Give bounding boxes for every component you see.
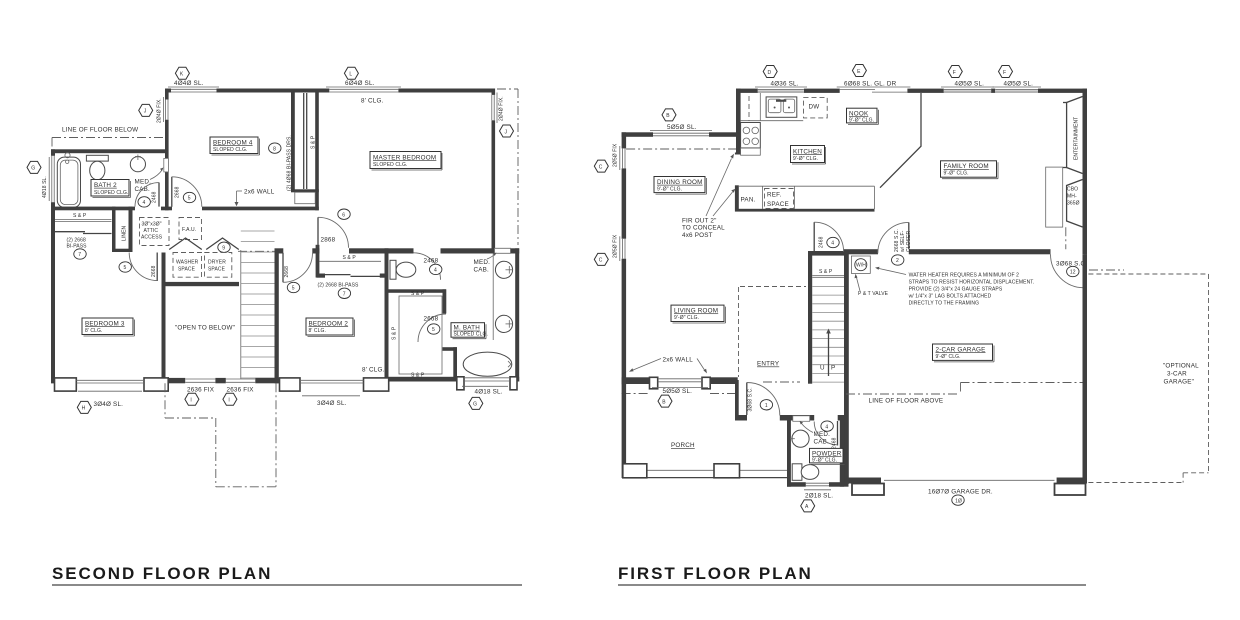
svg-text:LINE OF FLOOR ABOVE: LINE OF FLOOR ABOVE	[869, 398, 944, 405]
svg-text:5Ø5Ø SL.: 5Ø5Ø SL.	[667, 124, 697, 131]
svg-text:WASHER: WASHER	[176, 260, 199, 266]
svg-text:2636 FIX: 2636 FIX	[187, 387, 215, 394]
svg-text:M. BATH: M. BATH	[454, 325, 481, 332]
svg-text:2Ø4Ø FIX.: 2Ø4Ø FIX.	[157, 98, 163, 123]
svg-text:KITCHEN: KITCHEN	[793, 148, 822, 155]
svg-text:J: J	[505, 129, 508, 135]
svg-text:2668: 2668	[174, 186, 180, 198]
svg-text:U: U	[820, 365, 825, 372]
svg-text:H: H	[82, 406, 86, 412]
svg-text:3Ø"x3Ø": 3Ø"x3Ø"	[142, 222, 162, 228]
svg-text:7: 7	[78, 252, 81, 258]
svg-text:SLOPED CLG.: SLOPED CLG.	[454, 332, 488, 338]
svg-text:3Ø68 S.C.: 3Ø68 S.C.	[748, 387, 754, 411]
svg-text:4: 4	[143, 200, 146, 206]
svg-text:PORCH: PORCH	[671, 442, 695, 449]
svg-text:16Ø7Ø GARAGE DR.: 16Ø7Ø GARAGE DR.	[928, 489, 993, 496]
svg-text:BEDROOM 3: BEDROOM 3	[85, 320, 125, 327]
svg-text:9'-Ø" CLG.: 9'-Ø" CLG.	[674, 315, 699, 321]
svg-text:DRYER: DRYER	[208, 260, 226, 266]
svg-text:"OPEN TO BELOW": "OPEN TO BELOW"	[175, 325, 235, 332]
svg-text:CAB.: CAB.	[474, 266, 490, 273]
svg-text:3Ø4Ø SL.: 3Ø4Ø SL.	[317, 400, 347, 407]
svg-text:2-CAR GARAGE: 2-CAR GARAGE	[936, 346, 986, 353]
svg-text:J: J	[144, 109, 147, 115]
svg-text:F: F	[953, 70, 956, 76]
svg-text:8: 8	[273, 146, 276, 152]
svg-text:2468: 2468	[832, 437, 838, 449]
svg-text:C: C	[599, 258, 603, 264]
svg-text:DIRECTLY TO THE FRAMING: DIRECTLY TO THE FRAMING	[909, 301, 979, 307]
svg-text:(2) 4Ø68 BI-PASS DRS.: (2) 4Ø68 BI-PASS DRS.	[287, 135, 293, 191]
svg-text:GARAGE": GARAGE"	[1164, 379, 1195, 386]
svg-text:2x6 WALL: 2x6 WALL	[244, 189, 275, 196]
svg-text:9'-Ø" CLG.: 9'-Ø" CLG.	[944, 171, 969, 177]
svg-text:DW: DW	[809, 104, 820, 111]
svg-text:2668: 2668	[284, 266, 290, 278]
svg-text:MED.: MED.	[814, 431, 831, 438]
svg-text:6Ø4Ø SL.: 6Ø4Ø SL.	[345, 80, 375, 87]
svg-text:2468: 2468	[818, 236, 824, 248]
svg-text:9: 9	[222, 246, 225, 252]
svg-text:5: 5	[292, 286, 295, 292]
svg-text:S & P: S & P	[73, 213, 87, 219]
svg-text:SLOPED CLG.: SLOPED CLG.	[213, 147, 247, 153]
svg-text:F.A.U.: F.A.U.	[182, 227, 196, 233]
svg-text:2: 2	[896, 258, 899, 264]
svg-text:3Ø4Ø SL.: 3Ø4Ø SL.	[94, 401, 124, 408]
svg-text:W/H: W/H	[856, 263, 866, 269]
svg-text:P: P	[831, 365, 835, 372]
svg-text:CBO: CBO	[1067, 187, 1078, 193]
svg-text:REF.: REF.	[767, 191, 781, 198]
svg-text:2668: 2668	[151, 265, 157, 277]
svg-text:D: D	[768, 70, 772, 76]
svg-text:7: 7	[343, 292, 346, 298]
svg-text:2468: 2468	[424, 258, 439, 265]
svg-text:SPACE: SPACE	[208, 267, 226, 273]
svg-text:9'-Ø" CLG.: 9'-Ø" CLG.	[657, 186, 682, 192]
svg-text:8' CLG.: 8' CLG.	[361, 98, 384, 105]
svg-text:2x6 WALL: 2x6 WALL	[663, 357, 694, 364]
svg-text:S & P: S & P	[392, 326, 398, 340]
svg-text:4Ø36 SL.: 4Ø36 SL.	[771, 81, 799, 88]
svg-text:TO CONCEAL: TO CONCEAL	[682, 225, 725, 232]
svg-text:S & P: S & P	[343, 255, 357, 261]
svg-text:FIRST FLOOR PLAN: FIRST FLOOR PLAN	[618, 564, 813, 583]
svg-text:2Ø5Ø FIX: 2Ø5Ø FIX	[613, 143, 619, 167]
svg-text:DINING ROOM: DINING ROOM	[657, 179, 703, 186]
svg-text:STRAPS TO RESIST HORIZONTAL DI: STRAPS TO RESIST HORIZONTAL DISPLACEMENT…	[909, 280, 1035, 286]
svg-text:L: L	[349, 72, 352, 78]
svg-text:SPACE: SPACE	[178, 267, 196, 273]
svg-text:4: 4	[831, 241, 834, 247]
svg-text:5Ø5Ø SL.: 5Ø5Ø SL.	[663, 388, 693, 395]
svg-text:MH-: MH-	[1067, 194, 1077, 200]
svg-text:P & T VALVE: P & T VALVE	[858, 291, 889, 297]
svg-text:B: B	[662, 399, 666, 405]
svg-text:E: E	[857, 69, 861, 75]
svg-text:PROVIDE (2) 3/4"x 24 GAUGE STR: PROVIDE (2) 3/4"x 24 GAUGE STRAPS	[909, 287, 1003, 293]
svg-text:LINEN: LINEN	[122, 225, 128, 241]
svg-text:FIR OUT 2": FIR OUT 2"	[682, 217, 717, 224]
svg-text:8' CLG.: 8' CLG.	[85, 328, 103, 334]
svg-text:ENTERTAINMENT: ENTERTAINMENT	[1074, 117, 1080, 160]
svg-text:4Ø18 SL.: 4Ø18 SL.	[42, 176, 48, 198]
svg-text:S & P: S & P	[411, 291, 425, 297]
svg-text:5: 5	[432, 327, 435, 333]
svg-text:5: 5	[188, 196, 191, 202]
svg-text:3-CAR: 3-CAR	[1167, 371, 1187, 378]
svg-text:6Ø68 SL. GL. DR: 6Ø68 SL. GL. DR	[844, 81, 897, 88]
svg-text:2Ø4Ø FIX.: 2Ø4Ø FIX.	[499, 96, 505, 121]
svg-text:SLOPED CLG.: SLOPED CLG.	[373, 162, 407, 168]
svg-text:4Ø5Ø SL.: 4Ø5Ø SL.	[1004, 81, 1034, 88]
svg-text:MED.: MED.	[474, 259, 491, 266]
svg-text:NOOK: NOOK	[849, 110, 869, 117]
svg-text:4: 4	[825, 424, 828, 430]
svg-text:WATER HEATER REQUIRES A MINIMU: WATER HEATER REQUIRES A MINIMUM OF 2	[909, 273, 1020, 279]
svg-text:G: G	[31, 166, 35, 172]
svg-text:SLOPED CLG.: SLOPED CLG.	[94, 190, 128, 196]
svg-text:6: 6	[342, 212, 345, 218]
svg-text:2868: 2868	[321, 237, 336, 244]
svg-text:MASTER BEDROOM: MASTER BEDROOM	[373, 154, 436, 161]
svg-text:365Ø: 365Ø	[1067, 201, 1080, 207]
svg-text:LINE OF FLOOR BELOW: LINE OF FLOOR BELOW	[62, 127, 138, 134]
svg-text:I: I	[228, 398, 230, 404]
svg-text:4: 4	[434, 268, 437, 274]
svg-text:2636 FIX: 2636 FIX	[227, 387, 255, 394]
svg-text:12: 12	[1070, 270, 1076, 276]
svg-text:2Ø18 SL.: 2Ø18 SL.	[805, 493, 833, 500]
svg-text:4Ø4Ø SL.: 4Ø4Ø SL.	[174, 80, 204, 87]
svg-text:K: K	[180, 72, 184, 78]
svg-text:9'-Ø" CLG.: 9'-Ø" CLG.	[793, 156, 818, 162]
svg-text:BEDROOM 4: BEDROOM 4	[213, 139, 253, 146]
svg-text:G: G	[473, 402, 477, 408]
svg-text:9'-Ø" CLG.: 9'-Ø" CLG.	[812, 457, 837, 463]
svg-text:FAMILY ROOM: FAMILY ROOM	[944, 163, 989, 170]
svg-text:BI-PASS: BI-PASS	[67, 243, 88, 249]
svg-text:1: 1	[765, 403, 768, 409]
svg-text:I: I	[190, 398, 192, 404]
svg-text:S & P: S & P	[310, 135, 316, 149]
svg-text:4Ø5Ø SL.: 4Ø5Ø SL.	[955, 81, 985, 88]
svg-text:w/ 1/4"x 3" LAG BOLTS ATTACHED: w/ 1/4"x 3" LAG BOLTS ATTACHED	[909, 294, 992, 300]
svg-text:2468: 2468	[151, 191, 157, 203]
svg-text:ENTRY: ENTRY	[757, 361, 780, 368]
svg-text:CLOSER: CLOSER	[906, 231, 912, 252]
svg-text:SPACE: SPACE	[767, 201, 789, 208]
svg-text:ATTIC: ATTIC	[144, 228, 159, 234]
svg-text:9'-Ø" CLG.: 9'-Ø" CLG.	[936, 354, 961, 360]
svg-text:4Ø18 SL.: 4Ø18 SL.	[475, 389, 503, 396]
svg-text:9'-Ø" CLG.: 9'-Ø" CLG.	[849, 117, 874, 123]
svg-text:PAN.: PAN.	[741, 197, 756, 204]
svg-text:POWDER: POWDER	[812, 450, 842, 457]
svg-text:(2) 2668 BI-PASS: (2) 2668 BI-PASS	[318, 283, 360, 289]
svg-text:2Ø5Ø FIX: 2Ø5Ø FIX	[613, 234, 619, 258]
svg-text:LIVING ROOM: LIVING ROOM	[674, 307, 718, 314]
svg-text:BATH 2: BATH 2	[94, 182, 117, 189]
svg-text:S & P: S & P	[819, 269, 833, 275]
svg-text:"OPTIONAL: "OPTIONAL	[1163, 363, 1199, 370]
svg-text:1Ø: 1Ø	[955, 498, 962, 504]
svg-text:5: 5	[124, 265, 127, 271]
svg-text:4x6 POST: 4x6 POST	[682, 232, 713, 239]
svg-text:2668: 2668	[424, 315, 439, 322]
svg-text:8' CLG.: 8' CLG.	[362, 367, 385, 374]
svg-text:B: B	[666, 113, 670, 119]
svg-text:A: A	[805, 504, 809, 510]
svg-text:ACCESS: ACCESS	[141, 235, 163, 241]
svg-text:F: F	[1003, 70, 1006, 76]
svg-text:SECOND FLOOR PLAN: SECOND FLOOR PLAN	[52, 564, 272, 583]
svg-text:BEDROOM 2: BEDROOM 2	[309, 320, 349, 327]
svg-text:C: C	[599, 164, 603, 170]
svg-text:8' CLG.: 8' CLG.	[309, 328, 327, 334]
